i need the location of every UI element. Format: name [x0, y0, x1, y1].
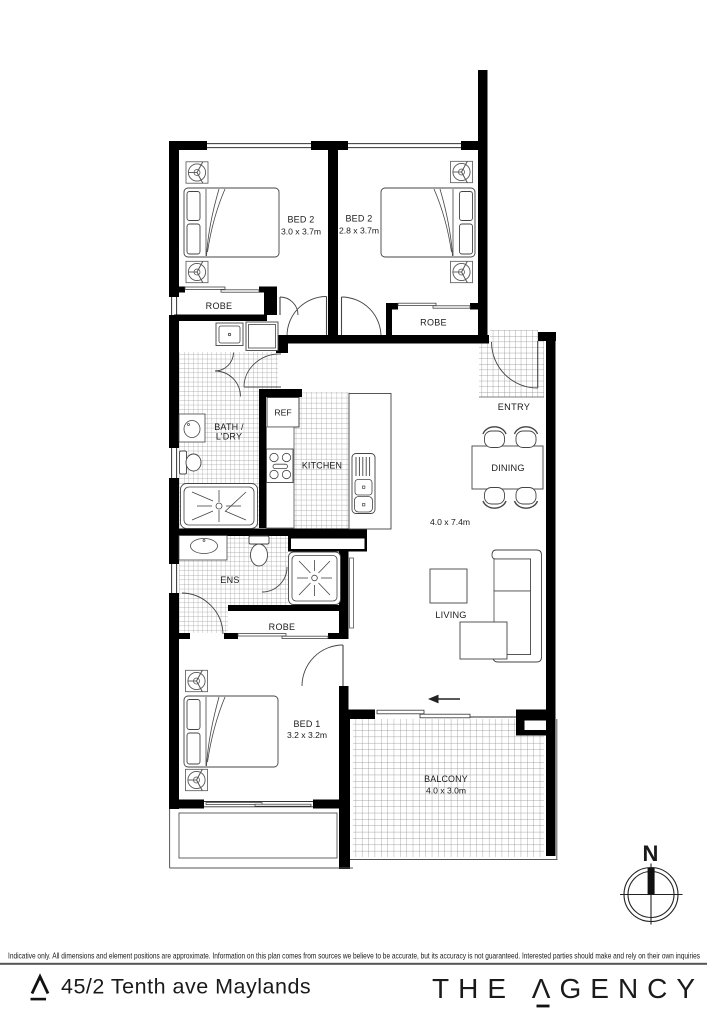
svg-text:ENS: ENS — [220, 575, 239, 585]
svg-text:ENTRY: ENTRY — [498, 402, 530, 412]
svg-text:REF: REF — [274, 408, 291, 418]
svg-text:ROBE: ROBE — [269, 622, 296, 632]
svg-text:2.8 x 3.7m: 2.8 x 3.7m — [339, 226, 379, 236]
svg-text:ROBE: ROBE — [420, 318, 447, 328]
svg-text:3.0 x 3.7m: 3.0 x 3.7m — [281, 227, 321, 237]
svg-text:N: N — [643, 841, 659, 866]
svg-text:Indicative only. All dimension: Indicative only. All dimensions and elem… — [8, 951, 700, 961]
svg-text:L’DRY: L’DRY — [216, 432, 242, 442]
svg-text:LIVING: LIVING — [435, 610, 466, 620]
svg-text:45/2 Tenth ave Maylands: 45/2 Tenth ave Maylands — [61, 975, 311, 999]
svg-text:BED 2: BED 2 — [287, 215, 314, 225]
svg-text:BED 1: BED 1 — [293, 719, 320, 729]
svg-text:THE ΛGENCY: THE ΛGENCY — [432, 973, 704, 1004]
svg-text:KITCHEN: KITCHEN — [302, 461, 342, 471]
svg-text:DINING: DINING — [491, 463, 524, 473]
svg-text:4.0 x 7.4m: 4.0 x 7.4m — [430, 517, 470, 527]
svg-text:BATH /: BATH / — [214, 422, 244, 432]
svg-text:4.0 x 3.0m: 4.0 x 3.0m — [426, 786, 466, 796]
svg-text:3.2 x 3.2m: 3.2 x 3.2m — [287, 730, 327, 740]
svg-text:BALCONY: BALCONY — [424, 774, 468, 784]
svg-text:ROBE: ROBE — [206, 301, 233, 311]
svg-text:BED 2: BED 2 — [345, 214, 372, 224]
